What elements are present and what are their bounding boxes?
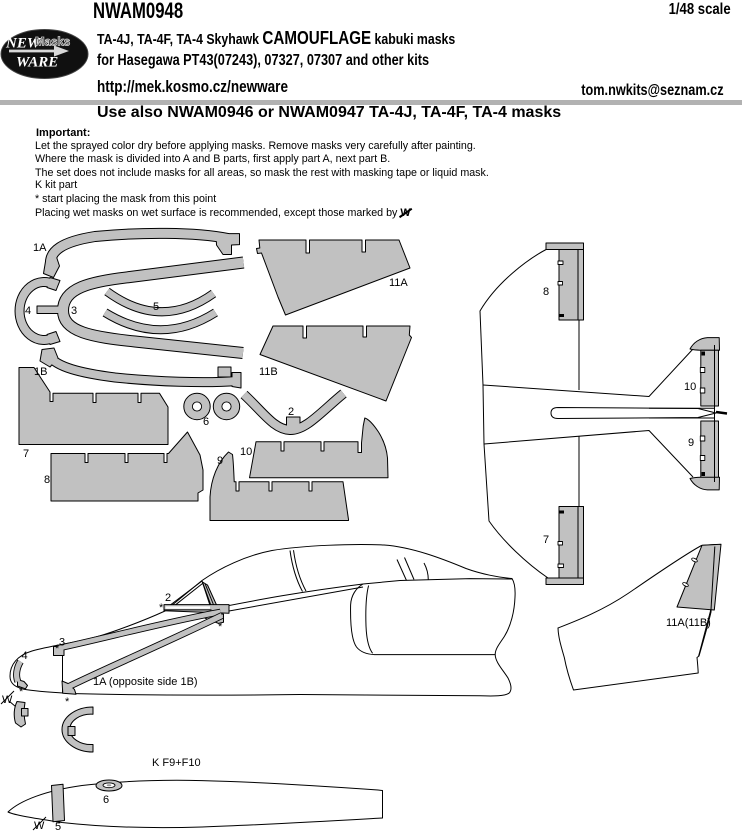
svg-text:1B: 1B xyxy=(34,366,47,378)
svg-text:3: 3 xyxy=(71,305,77,317)
svg-text:*: * xyxy=(218,621,223,633)
svg-text:1A (opposite side 1B): 1A (opposite side 1B) xyxy=(93,676,198,688)
svg-text:4: 4 xyxy=(22,650,28,662)
svg-text:*: * xyxy=(159,602,164,614)
svg-text:6: 6 xyxy=(103,794,109,806)
svg-text:3: 3 xyxy=(59,637,65,649)
svg-text:11A(11B): 11A(11B) xyxy=(666,617,711,629)
svg-text:5: 5 xyxy=(55,821,61,833)
svg-text:W: W xyxy=(2,694,13,706)
svg-text:4: 4 xyxy=(25,305,31,317)
svg-text:8: 8 xyxy=(543,286,549,298)
svg-text:K F9+F10: K F9+F10 xyxy=(152,757,201,769)
svg-text:7: 7 xyxy=(23,448,29,460)
svg-text:6: 6 xyxy=(203,416,209,428)
svg-text:2: 2 xyxy=(165,592,171,604)
svg-text:1A: 1A xyxy=(33,242,47,254)
svg-text:5: 5 xyxy=(153,301,159,313)
svg-text:*: * xyxy=(65,696,70,708)
svg-text:10: 10 xyxy=(240,446,252,458)
svg-text:11B: 11B xyxy=(259,366,278,378)
svg-text:W: W xyxy=(34,820,45,832)
svg-text:10: 10 xyxy=(684,381,696,393)
svg-text:*: * xyxy=(19,686,24,698)
svg-text:2: 2 xyxy=(288,406,294,418)
svg-text:11A: 11A xyxy=(389,277,408,289)
svg-text:8: 8 xyxy=(44,474,50,486)
svg-text:9: 9 xyxy=(217,455,223,467)
svg-text:7: 7 xyxy=(543,534,549,546)
svg-text:9: 9 xyxy=(688,437,694,449)
